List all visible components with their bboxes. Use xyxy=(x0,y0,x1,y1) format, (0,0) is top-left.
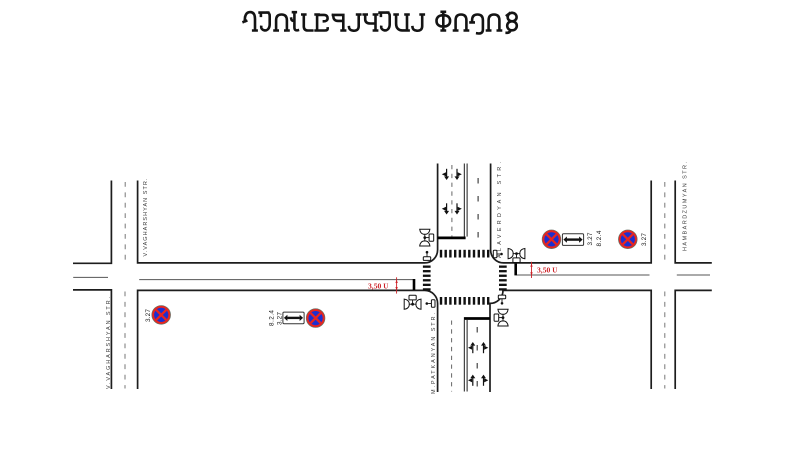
svg-text:8.2.4: 8.2.4 xyxy=(596,230,603,246)
svg-text:8.2.4: 8.2.4 xyxy=(269,310,276,326)
svg-text:3.27: 3.27 xyxy=(277,312,284,325)
svg-text:3.27: 3.27 xyxy=(587,232,594,245)
svg-text:3,50 U: 3,50 U xyxy=(537,266,557,275)
svg-text:ALAVERDYAN STR.: ALAVERDYAN STR. xyxy=(497,162,503,258)
svg-text:3,50 U: 3,50 U xyxy=(368,282,388,291)
svg-text:3.27: 3.27 xyxy=(641,233,648,246)
svg-text:V.VAGHARSHYAN STR.: V.VAGHARSHYAN STR. xyxy=(143,178,149,256)
svg-text:3.27: 3.27 xyxy=(145,309,152,322)
